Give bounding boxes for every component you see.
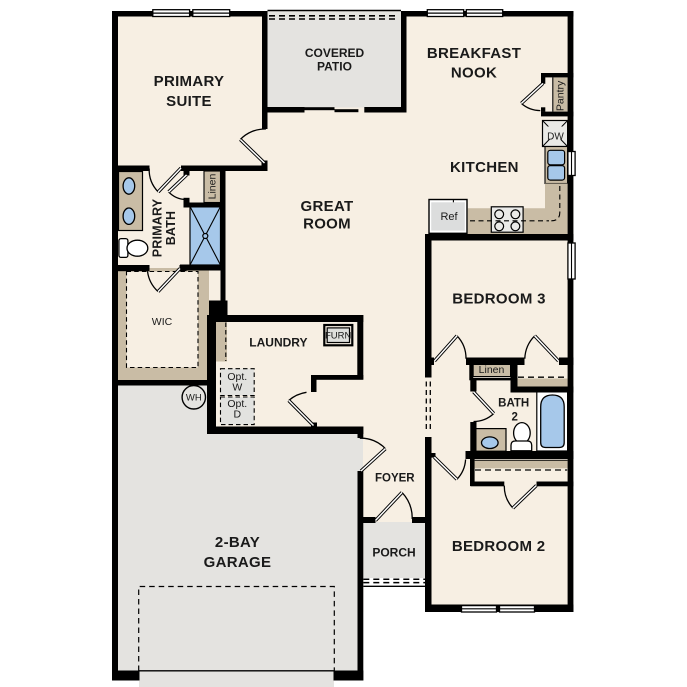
svg-text:2: 2 — [511, 412, 517, 424]
svg-text:W: W — [232, 382, 242, 394]
svg-text:SUITE: SUITE — [166, 93, 212, 110]
svg-text:BEDROOM 2: BEDROOM 2 — [452, 538, 546, 555]
svg-text:WIC: WIC — [152, 316, 173, 328]
svg-text:GARAGE: GARAGE — [204, 554, 272, 571]
svg-text:PRIMARY: PRIMARY — [154, 73, 225, 90]
svg-text:FOYER: FOYER — [375, 472, 415, 484]
svg-text:WH: WH — [186, 393, 202, 404]
svg-text:PATIO: PATIO — [317, 59, 352, 73]
svg-text:KITCHEN: KITCHEN — [450, 159, 519, 176]
svg-text:FURN: FURN — [325, 331, 352, 342]
svg-text:BATH: BATH — [498, 398, 529, 410]
svg-text:Linen: Linen — [207, 174, 219, 200]
svg-text:GREAT: GREAT — [301, 198, 354, 215]
svg-text:ROOM: ROOM — [303, 216, 351, 233]
svg-text:BATH: BATH — [164, 211, 178, 246]
svg-text:PRIMARY: PRIMARY — [151, 198, 165, 257]
svg-text:Linen: Linen — [479, 364, 505, 376]
svg-text:COVERED: COVERED — [305, 46, 365, 60]
svg-text:BREAKFAST: BREAKFAST — [427, 45, 521, 62]
svg-text:D: D — [234, 409, 242, 421]
svg-text:BEDROOM 3: BEDROOM 3 — [452, 291, 546, 308]
svg-text:PORCH: PORCH — [372, 546, 415, 560]
svg-text:Ref: Ref — [440, 211, 458, 223]
svg-text:Pantry: Pantry — [555, 80, 567, 111]
svg-text:2-BAY: 2-BAY — [215, 534, 260, 551]
svg-text:DW: DW — [547, 132, 564, 143]
svg-text:NOOK: NOOK — [451, 65, 497, 82]
svg-text:LAUNDRY: LAUNDRY — [249, 335, 307, 349]
